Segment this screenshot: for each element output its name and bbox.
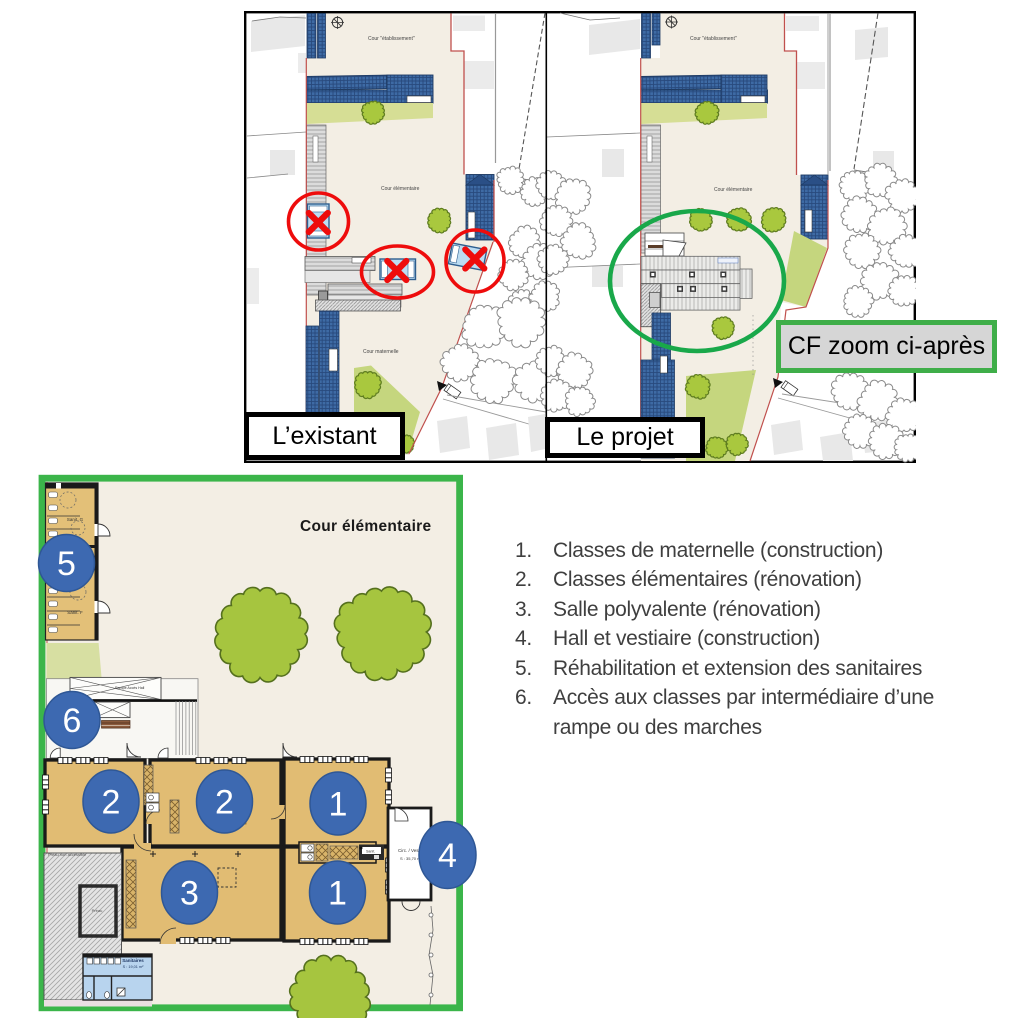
- svg-text:Cour "établissement": Cour "établissement": [690, 36, 737, 42]
- svg-text:Cour élémentaire: Cour élémentaire: [300, 518, 432, 535]
- svg-text:Circ. / Vest.: Circ. / Vest.: [398, 848, 421, 853]
- svg-text:Cour élémentaire: Cour élémentaire: [381, 186, 420, 192]
- svg-text:Cour maternelle: Cour maternelle: [363, 349, 399, 355]
- svg-text:Cour élémentaire: Cour élémentaire: [714, 187, 753, 193]
- svg-text:Cour "établissement": Cour "établissement": [368, 36, 415, 42]
- svg-text:Sanit. F: Sanit. F: [67, 610, 83, 615]
- svg-text:S : 19,01 m²: S : 19,01 m²: [123, 965, 144, 969]
- svg-text:1: 1: [329, 786, 348, 824]
- svg-text:Sanit. G: Sanit. G: [67, 517, 84, 522]
- svg-text:Préau: Préau: [92, 908, 103, 913]
- svg-text:1: 1: [328, 875, 347, 913]
- svg-text:2: 2: [102, 784, 121, 822]
- svg-text:Rampe Accès Hall: Rampe Accès Hall: [115, 686, 145, 690]
- svg-text:Sanitaires: Sanitaires: [122, 958, 144, 963]
- svg-text:Préau non accessible: Préau non accessible: [48, 852, 87, 857]
- svg-text:3: 3: [180, 875, 199, 913]
- svg-text:6: 6: [63, 702, 82, 740]
- svg-text:4: 4: [438, 837, 457, 875]
- svg-text:2: 2: [215, 784, 234, 822]
- svg-text:Sanit.: Sanit.: [366, 850, 375, 854]
- svg-text:5: 5: [57, 545, 76, 583]
